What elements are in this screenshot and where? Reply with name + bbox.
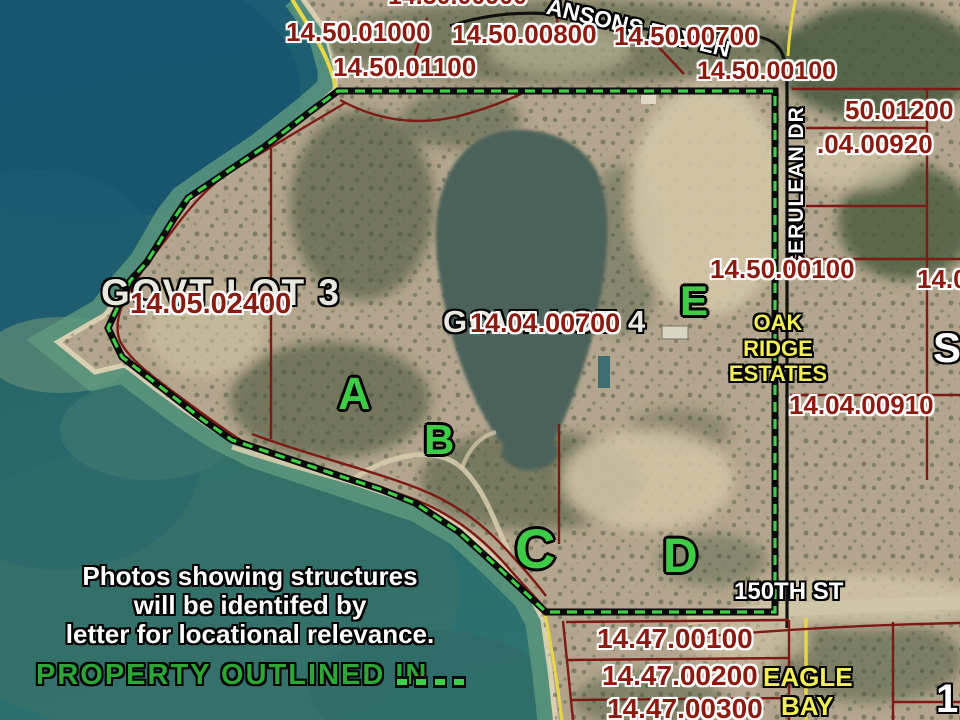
parcel-label-14-47-00200: 14.47.00200 — [602, 661, 758, 690]
legend-dash-swatch — [392, 673, 472, 691]
parcel-label-14-47-00100: 14.47.00100 — [597, 624, 753, 653]
marker-c: C — [515, 520, 555, 579]
parcel-label-14-50-00100-mid: 14.50.00100 — [710, 256, 855, 283]
parcel-label-14-0-partial: 14.0 — [917, 266, 960, 293]
oak-ridge-line3: ESTATES — [716, 361, 840, 387]
road-label-150th-st: 150TH ST — [734, 579, 843, 604]
parcel-label-14-04-00910: 14.04.00910 — [789, 392, 934, 419]
aerial-parcel-map: 14.50.00900 ANSONS BAY LN 14.50.01000 14… — [0, 0, 960, 720]
marker-e: E — [680, 279, 708, 323]
photo-caption: Photos showing structures will be identi… — [28, 562, 472, 649]
one-partial-label: 1 — [936, 678, 958, 720]
oak-ridge-line2: RIDGE — [716, 336, 840, 362]
parcel-label-14-47-00300: 14.47.00300 — [607, 694, 763, 720]
eagle-bay-label-line1: EAGLE — [763, 664, 853, 691]
parcel-label-14-50-01000: 14.50.01000 — [286, 19, 431, 46]
parcel-label-14-50-00100-top: 14.50.00100 — [697, 58, 836, 84]
building — [662, 326, 688, 339]
eagle-bay-label-line2: BAY — [781, 693, 834, 720]
oak-ridge-estates-label: OAK RIDGE ESTATES — [716, 310, 840, 387]
s-partial-label: S — [933, 326, 960, 370]
small-pool — [598, 356, 610, 388]
parcel-label-04-00920: .04.00920 — [817, 131, 933, 158]
caption-line3: letter for locational relevance. — [28, 620, 472, 649]
caption-line1: Photos showing structures — [28, 562, 472, 591]
caption-line2: will be identifed by — [28, 591, 472, 620]
parcel-label-14-50-00700: 14.50.00700 — [614, 23, 759, 50]
building — [641, 95, 656, 104]
marker-b: B — [424, 418, 454, 462]
marker-a: A — [338, 370, 371, 417]
parcel-label-14-50-00800: 14.50.00800 — [452, 21, 597, 48]
parcel-label-14-50-00900: 14.50.00900 — [388, 0, 527, 9]
oak-ridge-line1: OAK — [716, 310, 840, 336]
parcel-label-50-01200: 50.01200 — [845, 97, 953, 124]
parcel-label-14-05-02400: 14.05.02400 — [130, 289, 291, 319]
parcel-label-14-50-01100: 14.50.01100 — [333, 54, 476, 81]
marker-d: D — [663, 532, 698, 582]
legend-label: PROPERTY OUTLINED IN — [36, 660, 428, 690]
parcel-label-14-04-00700: 14.04.00700 — [470, 309, 620, 337]
road-label-cerulean-dr: CERULEAN DR — [786, 106, 808, 270]
